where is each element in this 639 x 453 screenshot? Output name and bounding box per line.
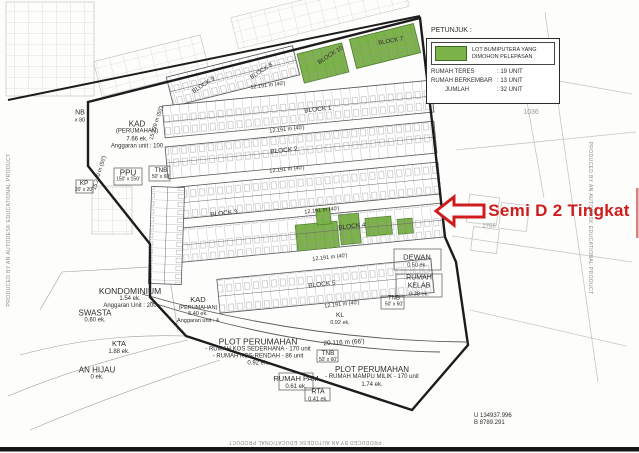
legend-label: RUMAH TERES xyxy=(431,68,497,77)
label-kad-perumahan-2: KAD (PERUMAHAN) 5.40 ek. Anggaran unit :… xyxy=(177,296,219,324)
text-line: SWASTA xyxy=(79,309,112,318)
plot-strip-left xyxy=(148,186,184,284)
legend-value: : 19 UNIT xyxy=(497,68,523,77)
text-line: Anggaran unit : 4 xyxy=(177,318,219,324)
text-line: 50' x 60' xyxy=(152,175,170,181)
label-nb: NB x 80 xyxy=(75,110,85,125)
label-rta: RTA 0.41 ek. xyxy=(308,389,328,404)
label-kp: KP 20' x 20' xyxy=(75,180,93,194)
text-line: 0.41 ek. xyxy=(308,397,328,403)
label-plot-perumahan-2: PLOT PERUMAHAN - RUMAH MAMPU MILIK - 170… xyxy=(325,365,419,389)
text-line: 0.60 ek. xyxy=(79,318,112,325)
legend-row-rumah-teres: RUMAH TERES : 19 UNIT xyxy=(431,68,555,77)
legend-box: LOT BUMIPUTERA YANG DIMOHON PELEPASAN RU… xyxy=(426,38,560,104)
text-line: KTA xyxy=(108,340,129,349)
legend-label: RUMAH BERKEMBAR xyxy=(431,77,497,86)
legend-value: : 32 UNIT xyxy=(497,86,523,95)
legend-swatch-row: LOT BUMIPUTERA YANG DIMOHON PELEPASAN xyxy=(431,42,555,65)
watermark-bottom: PRODUCED BY AN AUTODESK EDUCATIONAL PROD… xyxy=(229,438,382,444)
text-line: x 80 xyxy=(75,118,85,124)
text-line: 0.92 ek. xyxy=(205,361,310,368)
label-ppu: PPU 150' x 150' xyxy=(116,168,140,183)
watermark-left: PRODUCED BY AN AUTODESK EDUCATIONAL PROD… xyxy=(7,154,13,307)
label-rumah-kelab: RUMAH KELAB 0.38 ek. xyxy=(406,275,432,298)
text-line: 1.88 ek. xyxy=(108,349,129,356)
site-plan-scan: PETUNJUK : LOT BUMIPUTERA YANG DIMOHON P… xyxy=(0,0,639,453)
text-line: RUMAH PAM xyxy=(273,375,318,384)
label-kawasan-hijau: AN HIJAU 0 ek. xyxy=(79,366,115,383)
parcel-number-1036: 1036 xyxy=(523,109,539,117)
text-line: DIMOHON PELEPASAN xyxy=(472,54,537,61)
text-line: DEWAN xyxy=(403,253,431,262)
text-line: NB xyxy=(75,110,85,118)
text-line: RTA xyxy=(308,389,328,397)
label-tnb-3: TNB 50' x 60' xyxy=(385,296,403,309)
scan-edge-bar xyxy=(0,447,639,452)
label-kta: KTA 1.88 ek. xyxy=(108,340,129,356)
text-line: 20' x 20' xyxy=(75,188,93,194)
legend-title: PETUNJUK : xyxy=(431,27,472,35)
small-plots-left xyxy=(92,186,132,234)
text-line: B 8789.291 xyxy=(474,420,512,427)
legend-green-swatch xyxy=(435,46,467,61)
text-line: 150' x 150' xyxy=(116,178,140,184)
text-line: PLOT PERUMAHAN xyxy=(325,365,419,374)
text-line: LOT BUMIPUTERA YANG xyxy=(472,47,537,54)
label-dewan: DEWAN 0.50 ek. xyxy=(403,253,431,268)
watermark-right: PRODUCED BY AN AUTODESK EDUCATIONAL PROD… xyxy=(586,142,592,295)
annotation-semi-d-2-tingkat: Semi D 2 Tingkat xyxy=(488,201,629,221)
text-line: KONDOMINIUM xyxy=(99,286,161,296)
parcel-number-2766: 2766 xyxy=(482,223,495,230)
label-kondominium: KONDOMINIUM 1.54 ek. Anggaran Unit : 200 xyxy=(99,286,161,310)
text-line: 50' x 60' xyxy=(319,358,337,364)
text-line: 1.74 ek. xyxy=(325,382,419,389)
legend-label: JUMLAH xyxy=(431,86,497,95)
legend-row-jumlah: JUMLAH : 32 UNIT xyxy=(431,86,555,95)
coordinate-readout: U 134937.996 B 8789.291 xyxy=(474,413,512,427)
text-line: RUMAH xyxy=(406,275,432,283)
text-line: KELAB xyxy=(406,283,432,291)
label-swasta: SWASTA 0.60 ek. xyxy=(79,309,112,326)
text-line: AN HIJAU xyxy=(79,366,115,375)
text-line: KAD xyxy=(177,296,219,305)
text-line: - RUMAH KOS-RENDAH - 86 unit xyxy=(205,353,310,360)
text-line: 0.38 ek. xyxy=(406,291,432,297)
label-tnb-1: TNB 50' x 60' xyxy=(152,167,170,181)
legend-row-rumah-berkembar: RUMAH BERKEMBAR : 13 UNIT xyxy=(431,77,555,86)
text-line: - RUMAH KOS SEDERHANA - 170 unit xyxy=(205,346,310,353)
text-line: 0.50 ek. xyxy=(403,262,431,268)
label-kl: KL 0.92 ek. xyxy=(330,312,350,326)
scan-artifact-red-line xyxy=(636,188,639,238)
label-plot-perumahan-1: PLOT PERUMAHAN - RUMAH KOS SEDERHANA - 1… xyxy=(205,336,310,367)
legend-value: : 13 UNIT xyxy=(497,77,523,86)
text-line: Anggaran unit : 100 xyxy=(111,143,163,150)
text-line: PLOT PERUMAHAN xyxy=(205,336,310,346)
label-tnb-2: TNB 50' x 60' xyxy=(319,350,337,364)
text-line: 0.92 ek. xyxy=(330,320,350,326)
text-line: 0 ek. xyxy=(79,375,115,382)
legend-swatch-label: LOT BUMIPUTERA YANG DIMOHON PELEPASAN xyxy=(472,47,537,61)
text-line: 1.54 ek. xyxy=(99,296,161,303)
text-line: - RUMAH MAMPU MILIK - 170 unit xyxy=(325,375,419,382)
text-line: U 134937.996 xyxy=(474,413,512,420)
text-line: KL xyxy=(330,312,350,320)
text-line: 50' x 60' xyxy=(385,303,403,309)
